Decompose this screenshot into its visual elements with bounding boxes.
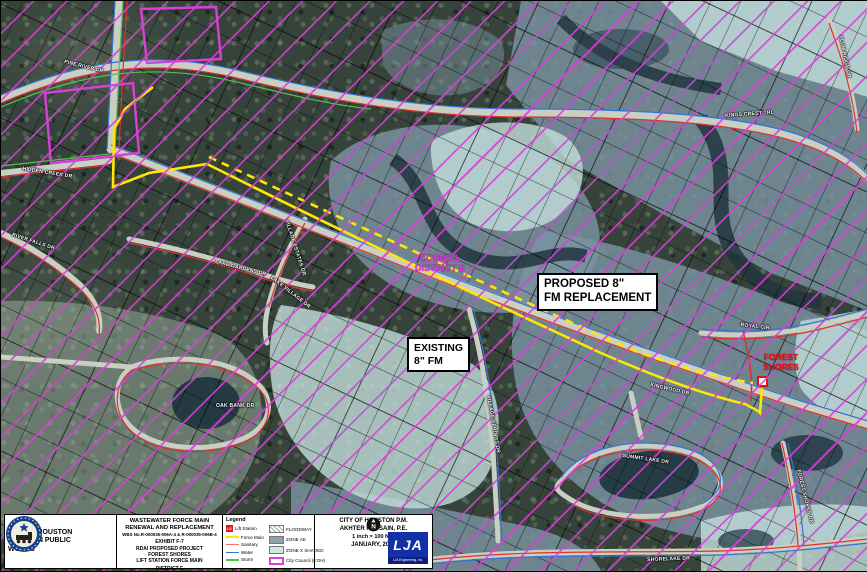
council-district-label: COUNCIL DISTRICT E — [399, 253, 481, 274]
legend-item-storm: Storm — [226, 557, 264, 562]
legend-label: Lift Station — [235, 526, 257, 531]
forest-shores-label: FOREST SHORES — [751, 353, 811, 373]
project-title-line1: WASTEWATER FORCE MAIN — [117, 518, 222, 525]
legend-item-lift-station: LS Lift Station — [226, 525, 264, 532]
legend-title: Legend — [226, 517, 311, 523]
legend-cell: Legend LS Lift Station Force Main Sanita… — [223, 515, 315, 568]
legend-label: Sanitary — [241, 542, 258, 547]
zone-ae-swatch-icon — [269, 536, 284, 544]
north-arrow-icon: N — [366, 517, 381, 532]
street-label: OAK BANK DR — [216, 403, 254, 409]
legend-label: Force Main — [241, 535, 264, 540]
lja-logo-subtext: LJA Engineering, Inc. — [388, 557, 428, 564]
project-cell: WASTEWATER FORCE MAIN RENEWAL AND REPLAC… — [117, 515, 223, 568]
legend-label: ZONE AE — [286, 537, 306, 542]
project-district: DISTRICT E — [117, 566, 222, 572]
water-line-icon — [226, 552, 239, 554]
project-title-line2: RENEWAL AND REPLACEMENT — [117, 525, 222, 532]
pm-cell: CITY OF HOUSTON P.M. AKHTER HUSSAIN, P.E… — [315, 515, 432, 568]
proposed-fm-label: PROPOSED 8" FM REPLACEMENT — [537, 273, 658, 311]
legend-label: Storm — [241, 557, 253, 562]
lift-station-icon: LS — [226, 525, 233, 532]
existing-fm-label: EXISTING 8" FM — [407, 337, 470, 372]
council-label-line2: DISTRICT E — [399, 263, 481, 273]
storm-lines — [1, 1, 371, 166]
lja-engineering-logo: LJA LJA Engineering, Inc. — [388, 532, 428, 564]
existing-label-line1: EXISTING — [414, 342, 463, 355]
existing-label-line2: 8" FM — [414, 355, 463, 368]
project-wbs: WBS No.R-000035-006A-4 & R-000035-006B-4 — [117, 532, 222, 538]
council-label-line1: COUNCIL — [399, 253, 481, 263]
zone-x-swatch-icon — [269, 546, 284, 554]
lja-logo-text: LJA — [388, 532, 428, 557]
forest-label-line2: SHORES — [751, 363, 811, 373]
proposed-label-line2: FM REPLACEMENT — [544, 292, 651, 306]
north-letter: N — [371, 524, 376, 531]
storm-line-icon — [226, 559, 239, 561]
legend-item-force-main: Force Main — [226, 535, 264, 540]
lift-station-marker — [758, 377, 767, 386]
legend-item-water: Water — [226, 550, 264, 555]
force-main-line-icon — [226, 536, 239, 539]
proposed-label-line1: PROPOSED 8" — [544, 278, 651, 292]
city-of-houston-seal-icon — [5, 515, 43, 553]
agency-cell: CITY OF HOUSTON HOUSTON PUBLIC WORKS — [5, 515, 117, 568]
legend-item-sanitary: Sanitary — [226, 542, 264, 547]
title-block: CITY OF HOUSTON HOUSTON PUBLIC WORKS WAS… — [4, 514, 433, 569]
map-layers — [1, 1, 867, 571]
map-canvas: PINE RIVER DR HIDDEN CREEK DR RIVER FALL… — [0, 0, 867, 572]
sanitary-line-icon — [226, 544, 239, 546]
floodway-swatch-icon — [269, 525, 284, 533]
city-council-swatch-icon — [269, 557, 284, 565]
legend-label: FLOODWAY — [286, 527, 312, 532]
legend-label: Water — [241, 550, 253, 555]
legend-left-column: LS Lift Station Force Main Sanitary Wate… — [226, 525, 264, 567]
council-boundary — [45, 7, 221, 163]
